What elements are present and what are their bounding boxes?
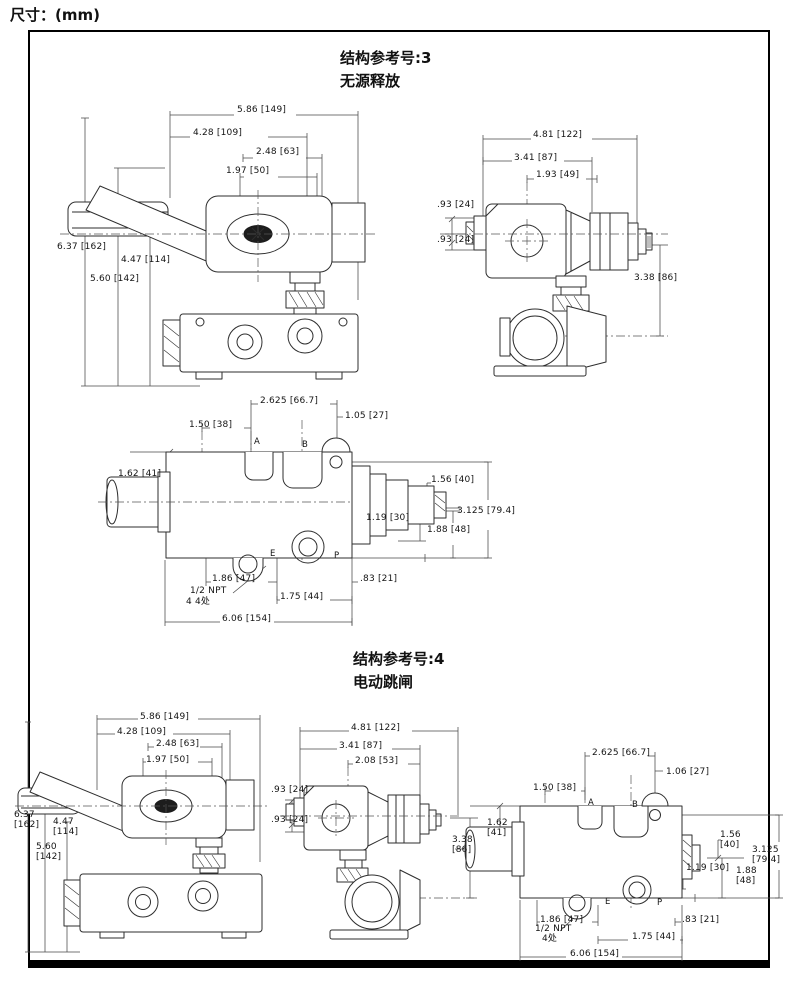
dim-label: 2.625 [66.7] — [260, 396, 318, 406]
dim-label: 6.06 [154] — [570, 949, 619, 959]
dim-label: 1.05 [27] — [345, 411, 388, 421]
dim-label: .93 [24] — [271, 785, 308, 795]
dim-label: 2.48 [63] — [256, 147, 299, 157]
valve-drawing-linework — [0, 0, 800, 984]
port-label-b: B — [632, 800, 638, 810]
dim-label: .93 [24] — [437, 235, 474, 245]
dim-label: 1.93 [49] — [536, 170, 579, 180]
dim-label: 1.75 [44] — [632, 932, 675, 942]
dim-label: 1.97 [50] — [226, 166, 269, 176]
dim-label: 4.81 [122] — [533, 130, 582, 140]
dim-label: 4.28 [109] — [193, 128, 242, 138]
dim-label: 4.28 [109] — [117, 727, 166, 737]
port-label-p: P — [334, 551, 339, 561]
dim-label: 1.50 [38] — [189, 420, 232, 430]
dim-label: 1.06 [27] — [666, 767, 709, 777]
dim-label: 1.56 [40] — [431, 475, 474, 485]
npt-places-note: 4处 — [542, 934, 557, 944]
dim-label: 1.62 [41] — [487, 818, 508, 839]
dim-label: 4.81 [122] — [351, 723, 400, 733]
dim-label: 1.97 [50] — [146, 755, 189, 765]
dim-label: 3.41 [87] — [339, 741, 382, 751]
dim-label: 1.62 [41] — [118, 469, 161, 479]
npt-note: 1/2 NPT — [190, 586, 226, 596]
dim-label: 3.38 [86] — [634, 273, 677, 283]
dim-label: 3.125 [79.4] — [752, 845, 780, 866]
port-label-a: A — [588, 798, 594, 808]
port-label-e: E — [270, 549, 275, 559]
dim-label: 5.86 [149] — [237, 105, 286, 115]
port-label-a: A — [254, 437, 260, 447]
dim-label: 1.19 [30] — [366, 513, 409, 523]
dim-label: .83 [21] — [360, 574, 397, 584]
dim-label: 3.41 [87] — [514, 153, 557, 163]
dim-label: .83 [21] — [682, 915, 719, 925]
dim-label: 5.60 [142] — [36, 842, 61, 863]
dim-label: .93 [24] — [437, 200, 474, 210]
dim-label: 6.37 [162] — [57, 242, 106, 252]
dim-label: 1.88 [48] — [736, 866, 757, 887]
dim-label: .93 [24] — [271, 815, 308, 825]
dim-label: 1.75 [44] — [280, 592, 323, 602]
dim-label: 4.47 [114] — [53, 817, 78, 838]
dim-label: 6.37 [162] — [14, 810, 39, 831]
dim-label: 1.88 [48] — [427, 525, 470, 535]
dim-label: 2.08 [53] — [355, 756, 398, 766]
dim-label: 3.125 [79.4] — [457, 506, 515, 516]
dim-label: 3.38 [86] — [452, 835, 473, 856]
dim-label: 6.06 [154] — [222, 614, 271, 624]
s3-front-view — [60, 111, 375, 386]
dim-label: 1.86 [47] — [212, 574, 255, 584]
dim-label: 1.19 [30] — [686, 863, 729, 873]
port-label-p: P — [657, 898, 662, 908]
dim-label: 1.50 [38] — [533, 783, 576, 793]
s4-port-view — [455, 752, 783, 961]
npt-places-note: 4 4处 — [186, 597, 210, 607]
drawing-page: 尺寸：(mm) 结构参考号:3 无源释放 结构参考号:4 电动跳闸 — [0, 0, 800, 984]
dim-label: 2.48 [63] — [156, 739, 199, 749]
dim-label: 5.60 [142] — [90, 274, 139, 284]
dim-label: 5.86 [149] — [140, 712, 189, 722]
dim-label: 4.47 [114] — [121, 255, 170, 265]
dim-label: 1.56 [40] — [720, 830, 741, 851]
npt-note: 1/2 NPT — [535, 924, 571, 934]
port-label-b: B — [302, 440, 308, 450]
port-label-e: E — [605, 897, 610, 907]
dim-label: 2.625 [66.7] — [592, 748, 650, 758]
